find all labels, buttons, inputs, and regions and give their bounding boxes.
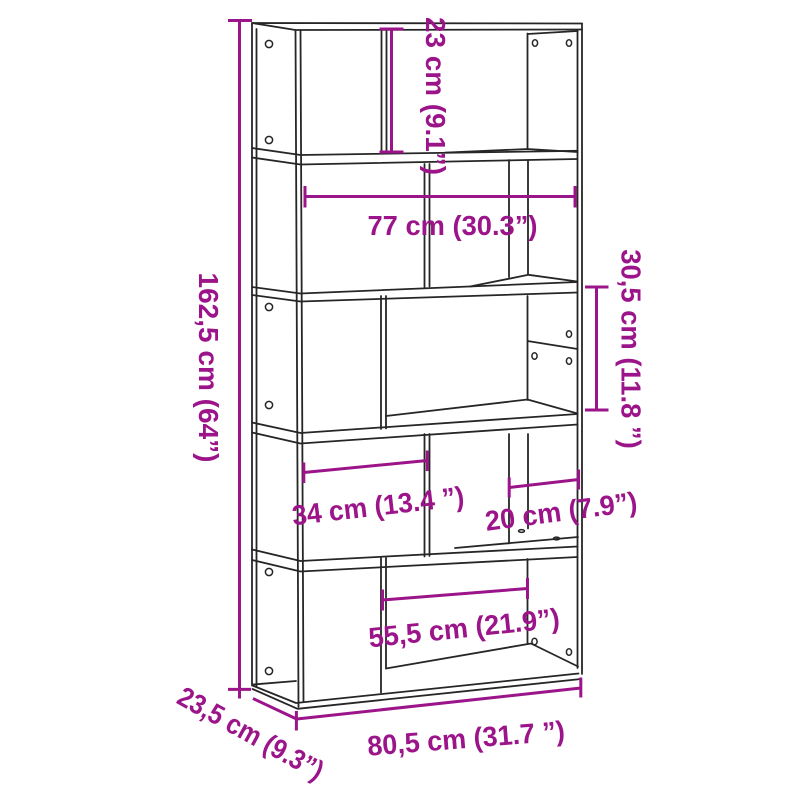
svg-text:23 cm (9.1”): 23 cm (9.1”) [420, 17, 451, 175]
svg-text:162,5 cm (64”): 162,5 cm (64”) [193, 273, 224, 463]
svg-text:30,5 cm (11.8 ”): 30,5 cm (11.8 ”) [616, 249, 647, 449]
svg-text:77 cm (30.3”): 77 cm (30.3”) [368, 210, 538, 241]
